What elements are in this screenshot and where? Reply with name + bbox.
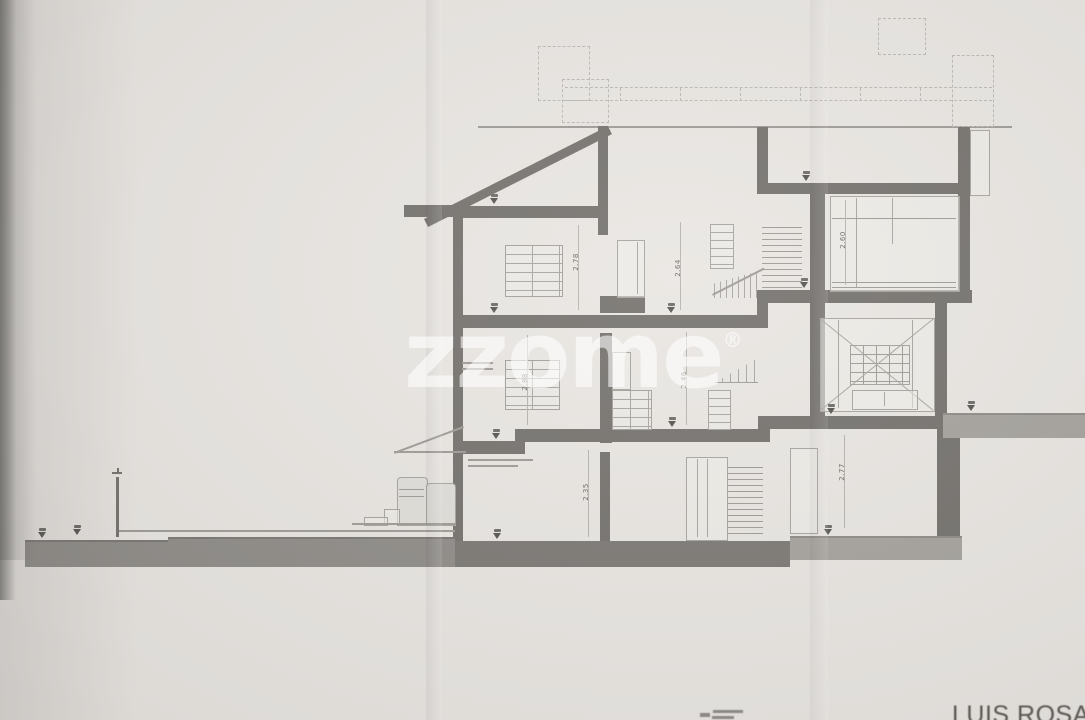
datum-triangle-icon <box>490 307 498 313</box>
vent-grid <box>708 390 731 430</box>
stair-steps <box>714 358 758 383</box>
level-value-smudge <box>494 529 501 532</box>
datum-triangle-icon <box>73 529 81 535</box>
hidden-line-tick <box>800 88 801 101</box>
level-marker-icon <box>37 528 47 540</box>
level-value-smudge <box>493 429 500 432</box>
datum-triangle-icon <box>667 307 675 313</box>
dimension-label: 2.77 <box>839 459 849 485</box>
datum-triangle-icon <box>492 433 500 439</box>
shelf-line <box>462 362 493 364</box>
counter-line <box>468 459 533 461</box>
ground-slab-center <box>523 429 765 442</box>
level-value-smudge <box>825 525 832 528</box>
photographed-section-drawing: 2.782.642.602.882.462.352.77 zzome® LUIS… <box>0 0 1085 720</box>
dimension-label: 2.35 <box>583 479 593 505</box>
level-value-smudge <box>491 194 498 197</box>
terrain-line <box>118 530 455 532</box>
left-ceiling-slab <box>455 206 608 218</box>
tank-outline <box>426 483 456 526</box>
foundation-slab-right <box>790 536 962 560</box>
door-panel-line <box>697 459 698 537</box>
vent-grid <box>710 224 734 269</box>
level-value-smudge <box>803 171 810 174</box>
window-sill-line <box>832 282 956 283</box>
level-value-smudge <box>801 278 808 281</box>
window-sill-divider <box>884 392 885 406</box>
window-mullion <box>892 198 893 244</box>
cupboard-outline <box>612 352 631 390</box>
counter-line <box>468 465 518 467</box>
dimension-label: 2.78 <box>573 249 583 275</box>
level-value-smudge <box>39 528 46 531</box>
level-marker-icon <box>966 401 976 413</box>
level-marker-icon <box>666 303 676 315</box>
canopy-line <box>394 451 466 453</box>
level-marker-icon <box>826 404 836 416</box>
hidden-line-tick <box>860 88 861 101</box>
flat-roof-slab <box>757 183 970 194</box>
datum-triangle-icon <box>824 529 832 535</box>
window-sill-line <box>832 287 956 288</box>
datum-triangle-icon <box>967 405 975 411</box>
hidden-line-tick <box>920 88 921 101</box>
stair-treads <box>762 227 802 290</box>
level-value-smudge <box>828 404 835 407</box>
terrain-band-left <box>25 540 170 567</box>
mid-right-exterior-wall <box>935 303 947 416</box>
level-marker-icon <box>489 194 499 206</box>
level-marker-icon <box>491 429 501 441</box>
level-value-smudge <box>669 417 676 420</box>
level-value-smudge <box>668 303 675 306</box>
partial-print-mark <box>713 710 743 713</box>
window-transom <box>832 218 956 219</box>
door-panel-line <box>707 459 708 537</box>
roof-parapet-wall <box>757 127 768 189</box>
ground-floor-divider-wall <box>600 452 610 543</box>
level-marker-icon <box>799 278 809 290</box>
rooftop-duct-outline <box>970 130 990 196</box>
tank-outline <box>397 477 428 526</box>
dimension-label: 2.64 <box>675 255 685 281</box>
datum-triangle-icon <box>668 421 676 427</box>
door-outline <box>617 240 645 298</box>
pole-tip <box>117 468 119 473</box>
datum-triangle-icon <box>38 532 46 538</box>
roof-structure-dashed-outline <box>952 55 994 127</box>
level-marker-icon <box>489 303 499 315</box>
mid-divider-wall <box>600 333 612 443</box>
datum-triangle-icon <box>800 282 808 288</box>
stair-landing-slab <box>600 296 645 313</box>
top-floor-divider-wall <box>810 194 825 294</box>
pole <box>116 477 119 537</box>
window-grid <box>612 390 652 430</box>
datum-triangle-icon <box>802 175 810 181</box>
level-marker-icon <box>72 525 82 537</box>
datum-triangle-icon <box>490 198 498 204</box>
level-marker-icon <box>823 525 833 537</box>
chimney-dashed-outline <box>878 18 926 55</box>
window-grid <box>505 245 563 297</box>
partial-print-mark <box>712 716 734 719</box>
stair-treads <box>727 467 763 537</box>
door-panel-line <box>637 242 638 294</box>
window-sill-panel <box>852 390 918 410</box>
dimension-label: 2.46 <box>681 367 691 393</box>
ground-detail-line <box>352 523 456 525</box>
level-value-smudge <box>491 303 498 306</box>
level-marker-icon <box>492 529 502 541</box>
foundation-slab <box>455 541 790 567</box>
upper-center-wall <box>598 221 608 235</box>
level-value-smudge <box>74 525 81 528</box>
right-terrace-slab <box>943 413 1085 438</box>
parapet-hidden-line <box>565 87 992 88</box>
terrain-band <box>168 537 455 567</box>
mid-floor-slab-left <box>453 315 768 328</box>
level-value-smudge <box>968 401 975 404</box>
chimney-dashed-outline <box>562 79 609 123</box>
building-section-drawing: 2.782.642.602.882.462.352.77 <box>0 0 1085 720</box>
door-outline <box>790 448 818 534</box>
roof-level-line <box>478 126 1012 128</box>
shelf-line <box>462 368 493 370</box>
hidden-line-tick <box>740 88 741 101</box>
partial-print-mark <box>700 713 710 717</box>
eave <box>404 205 458 217</box>
level-marker-icon <box>667 417 677 429</box>
parapet-hidden-line <box>565 100 992 101</box>
signature-text: LUIS ROSA V <box>952 701 1085 720</box>
hidden-line-tick <box>680 88 681 101</box>
hidden-line-tick <box>620 88 621 101</box>
dimension-label: 2.88 <box>522 369 532 395</box>
ground-slab-right <box>765 416 943 429</box>
window-mullion <box>856 198 857 288</box>
dimension-label: 2.60 <box>840 227 850 253</box>
window-grid <box>505 360 560 410</box>
level-marker-icon <box>801 171 811 183</box>
tank-band-line <box>399 489 424 490</box>
roof-parapet-wall <box>958 127 970 189</box>
datum-triangle-icon <box>493 533 501 539</box>
tank-band-line <box>399 496 424 497</box>
datum-triangle-icon <box>827 408 835 414</box>
